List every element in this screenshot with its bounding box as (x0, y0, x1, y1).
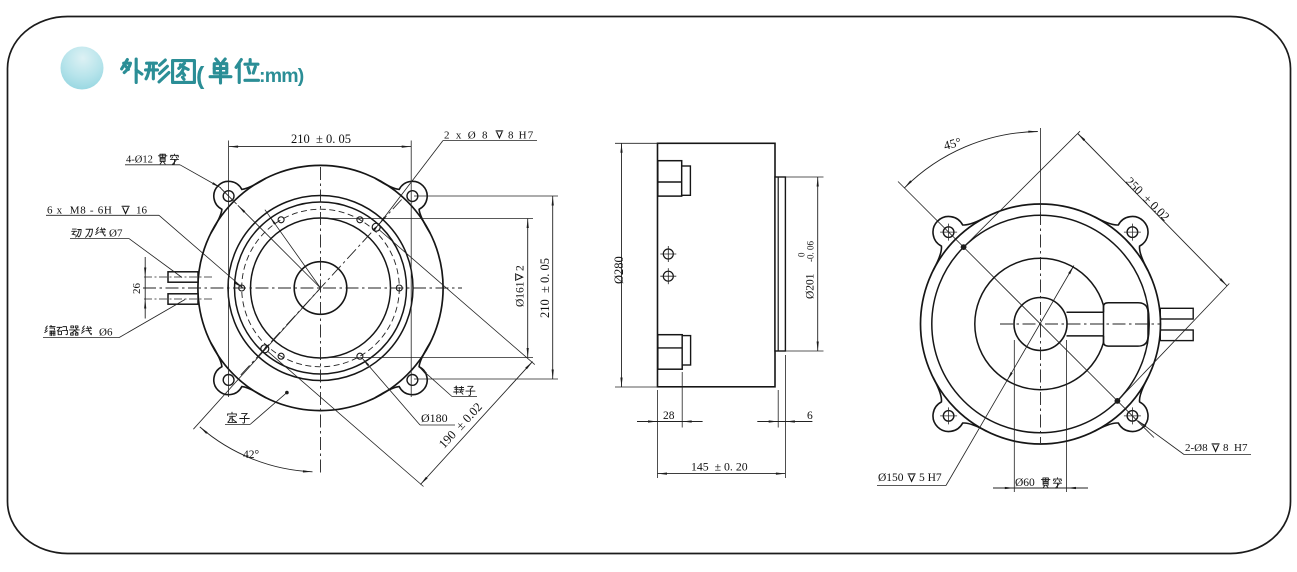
svg-text:Ø6: Ø6 (99, 327, 113, 339)
svg-text:Ø60: Ø60 (1015, 477, 1035, 489)
svg-text:210 ± 0. 05: 210 ± 0. 05 (291, 132, 351, 146)
svg-text:Ø7: Ø7 (109, 228, 123, 240)
svg-text:6 x M8 - 6H: 6 x M8 - 6H (47, 205, 113, 217)
svg-text:26: 26 (131, 283, 143, 295)
svg-text:Ø280: Ø280 (612, 256, 626, 284)
svg-text:(: ( (196, 62, 205, 90)
svg-text:190 ± 0.02: 190 ± 0.02 (436, 400, 485, 451)
svg-text:210 ± 0. 05: 210 ± 0. 05 (538, 258, 552, 318)
svg-text:6: 6 (807, 410, 813, 422)
svg-text:-0. 06: -0. 06 (806, 241, 816, 262)
svg-text:2 x Ø 8: 2 x Ø 8 (444, 130, 489, 142)
svg-text::mm): :mm) (259, 65, 304, 87)
svg-text:16: 16 (136, 205, 148, 217)
svg-text:Ø150: Ø150 (878, 472, 904, 484)
svg-text:2-Ø8: 2-Ø8 (1185, 442, 1208, 454)
svg-text:28: 28 (663, 410, 675, 422)
svg-text:0: 0 (797, 252, 807, 257)
svg-text:5 H7: 5 H7 (919, 472, 942, 484)
svg-text:145 ± 0. 20: 145 ± 0. 20 (691, 460, 748, 474)
svg-text:8 H7: 8 H7 (1223, 442, 1248, 454)
svg-text:Ø180: Ø180 (421, 411, 448, 425)
svg-text:45°: 45° (942, 135, 963, 153)
svg-text:Ø161: Ø161 (515, 281, 527, 307)
svg-text:42°: 42° (243, 449, 260, 461)
svg-text:Ø201: Ø201 (805, 273, 817, 299)
svg-text:2: 2 (515, 265, 527, 271)
svg-text:8 H7: 8 H7 (508, 130, 535, 142)
svg-text:4-Ø12: 4-Ø12 (126, 155, 153, 166)
